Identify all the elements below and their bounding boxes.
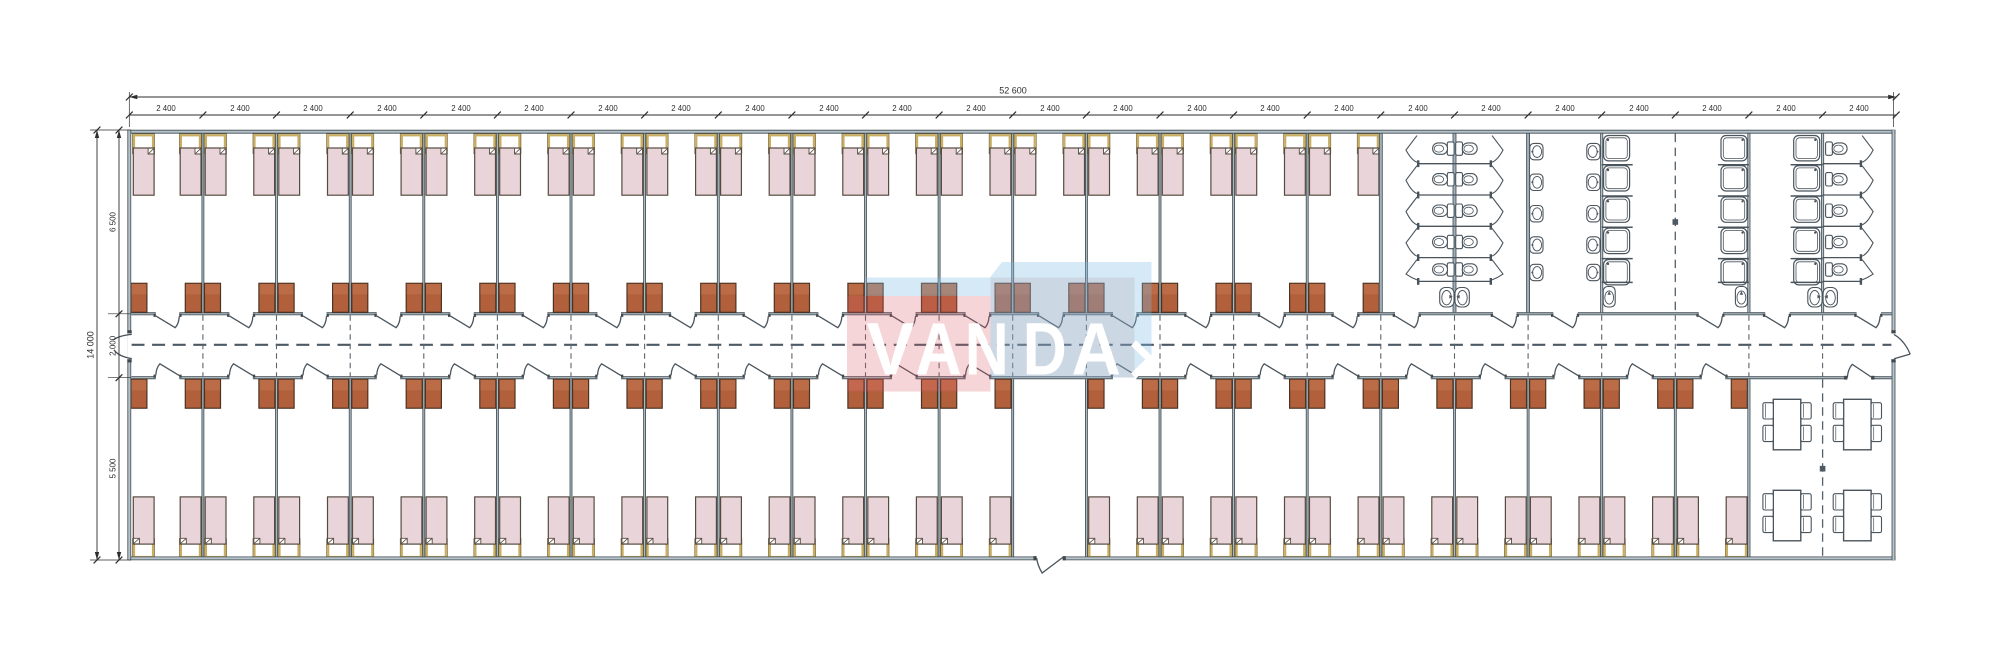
svg-text:2 400: 2 400: [377, 104, 397, 113]
svg-text:2 000: 2 000: [109, 335, 118, 356]
svg-text:2 400: 2 400: [1555, 104, 1575, 113]
svg-text:2 400: 2 400: [745, 104, 765, 113]
svg-text:2 400: 2 400: [1481, 104, 1501, 113]
svg-text:52 600: 52 600: [999, 86, 1027, 96]
svg-text:N: N: [965, 308, 1009, 391]
svg-text:2 400: 2 400: [598, 104, 618, 113]
svg-text:2 400: 2 400: [1849, 104, 1869, 113]
svg-text:2 400: 2 400: [966, 104, 986, 113]
svg-text:2 400: 2 400: [1187, 104, 1207, 113]
svg-text:2 400: 2 400: [1408, 104, 1428, 113]
svg-text:2 400: 2 400: [1776, 104, 1796, 113]
svg-text:2 400: 2 400: [1113, 104, 1133, 113]
svg-text:2 400: 2 400: [156, 104, 176, 113]
svg-text:2 400: 2 400: [1040, 104, 1060, 113]
svg-text:2 400: 2 400: [1334, 104, 1354, 113]
svg-text:V: V: [866, 308, 914, 391]
svg-text:2 400: 2 400: [1629, 104, 1649, 113]
svg-text:A: A: [915, 308, 962, 391]
svg-text:2 400: 2 400: [671, 104, 691, 113]
svg-text:D: D: [1023, 308, 1067, 391]
svg-text:6 500: 6 500: [109, 211, 118, 232]
svg-text:2 400: 2 400: [451, 104, 471, 113]
svg-text:2 400: 2 400: [819, 104, 839, 113]
svg-text:2 400: 2 400: [1260, 104, 1280, 113]
svg-text:2 400: 2 400: [230, 104, 250, 113]
svg-text:14 000: 14 000: [86, 331, 96, 359]
svg-text:2 400: 2 400: [524, 104, 544, 113]
svg-text:5 500: 5 500: [109, 458, 118, 479]
svg-text:2 400: 2 400: [1702, 104, 1722, 113]
svg-text:2 400: 2 400: [303, 104, 323, 113]
svg-text:2 400: 2 400: [892, 104, 912, 113]
svg-text:A: A: [1072, 308, 1122, 391]
